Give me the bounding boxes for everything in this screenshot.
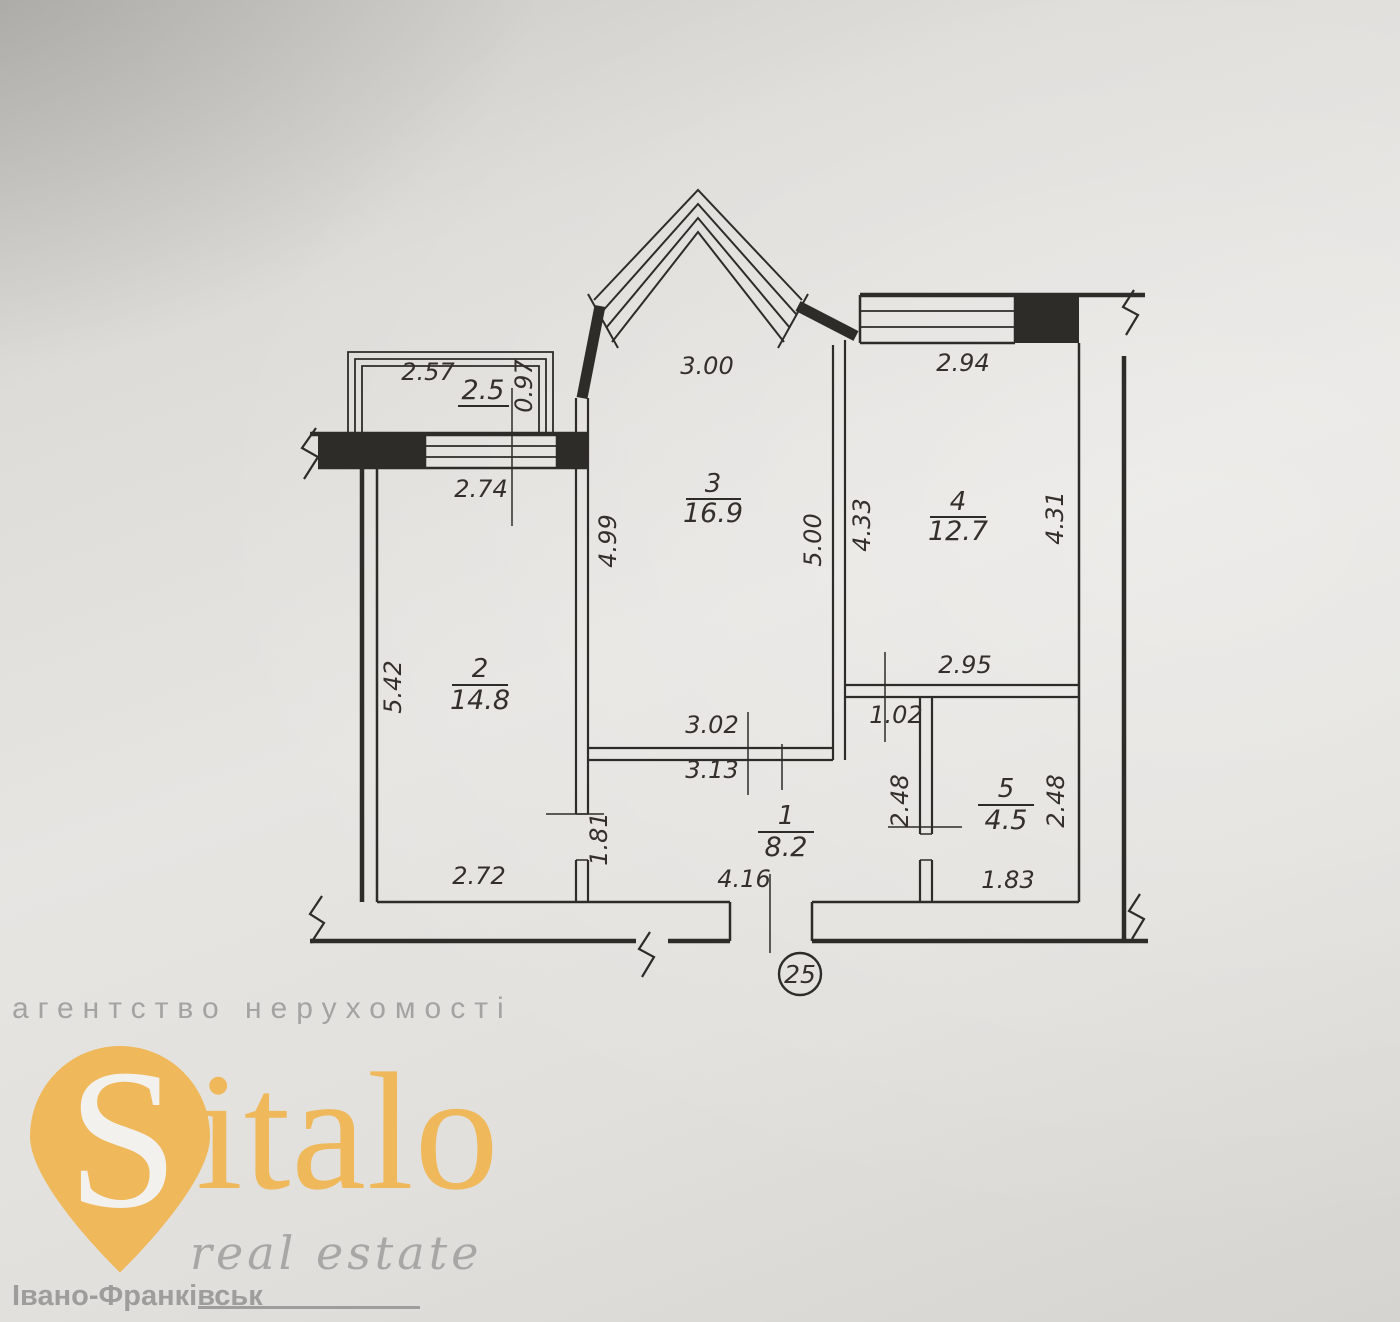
right-window-caps [860, 295, 1015, 343]
room3-area: 16.9 [683, 498, 743, 529]
bay-glazing-4 [612, 232, 784, 342]
right-window-glazing [860, 311, 1015, 327]
break-bottom-right-icon [1129, 894, 1144, 939]
brand-initial: S [67, 1044, 178, 1250]
dim-room5-bottom-width: 1.83 [981, 866, 1034, 894]
room1-area: 8.2 [765, 832, 808, 863]
break-bottom-left-icon [310, 896, 324, 943]
brand-pin-icon: S [28, 1044, 213, 1276]
room3-room4-wall [833, 340, 845, 760]
room5-door-jambs [920, 834, 932, 860]
room-labels: 3 16.9 4 12.7 2 14.8 1 8.2 5 4.5 2.5 [450, 375, 1034, 863]
dim-right-window: 2.94 [936, 349, 989, 377]
wall-fill-left2 [557, 434, 588, 468]
room2-area: 14.8 [450, 685, 510, 716]
dim-room3-bottom-upper: 3.02 [685, 711, 738, 739]
dim-left-window: 2.74 [454, 475, 507, 503]
room3-number: 3 [705, 469, 722, 499]
dim-room2-bottom-width: 2.72 [452, 862, 505, 890]
bay-glazing-3 [606, 218, 790, 328]
dim-line-room3-bottom [748, 712, 782, 795]
bay-glazing-caps [588, 294, 808, 348]
dim-bay-width: 3.00 [680, 352, 733, 380]
dim-room3-right-height: 5.00 [799, 513, 827, 566]
dim-room5-left-height: 2.48 [886, 774, 914, 827]
left-window-caps [425, 434, 557, 468]
dim-room2-left-height: 5.42 [379, 660, 407, 713]
dim-room4-bottom-width: 2.95 [938, 651, 991, 679]
balcony-area: 2.5 [462, 375, 505, 406]
dim-room5-right-height: 2.48 [1042, 774, 1070, 827]
brand-subtitle: real estate [190, 1226, 482, 1280]
break-bottom-center-icon [639, 932, 654, 977]
dim-balcony-depth: 0.97 [510, 359, 538, 413]
room1-number: 1 [778, 801, 795, 831]
dimension-labels: 2.57 0.97 2.74 3.00 2.94 4.99 5.00 4.33 … [379, 349, 1070, 894]
room4-area: 12.7 [928, 516, 988, 547]
city-underline [198, 1306, 420, 1309]
bay-glazing-1 [594, 190, 802, 300]
brand-wordmark: italo [196, 1048, 500, 1216]
room4-bottom-wall [845, 685, 1079, 697]
left-window-glazing [425, 446, 557, 457]
agency-tagline: агентство нерухомості [12, 992, 513, 1026]
dim-room4-right-height: 4.31 [1041, 491, 1069, 544]
bay-right-wall [798, 306, 856, 336]
floorplan-photo: 25 3 16.9 4 12.7 2 14.8 1 8.2 5 4.5 2.5 … [0, 0, 1400, 1322]
exterior-walls [310, 295, 1148, 941]
room5-area: 4.5 [985, 805, 1028, 836]
room4-number: 4 [950, 487, 967, 517]
bay-left-wall [582, 306, 600, 398]
dim-nook-width: 1.02 [869, 701, 922, 729]
entrance-door-caps [730, 902, 812, 941]
dim-room4-left-height: 4.33 [848, 498, 876, 551]
dim-room1-bottom-width: 4.16 [717, 865, 770, 893]
bay-glazing-2 [600, 204, 796, 314]
dim-room3-left-height: 4.99 [594, 514, 622, 567]
dim-room3-bottom-lower: 3.13 [685, 756, 738, 784]
unit-number-label: 25 [784, 960, 816, 989]
unit-number-badge: 25 [779, 953, 821, 995]
dim-room2-door: 1.81 [585, 812, 613, 865]
wall-fill-topright [1015, 295, 1079, 343]
room2-number: 2 [472, 654, 489, 684]
wall-fill-left [318, 434, 425, 468]
dim-balcony-width: 2.57 [401, 358, 455, 386]
room5-number: 5 [998, 774, 1015, 804]
